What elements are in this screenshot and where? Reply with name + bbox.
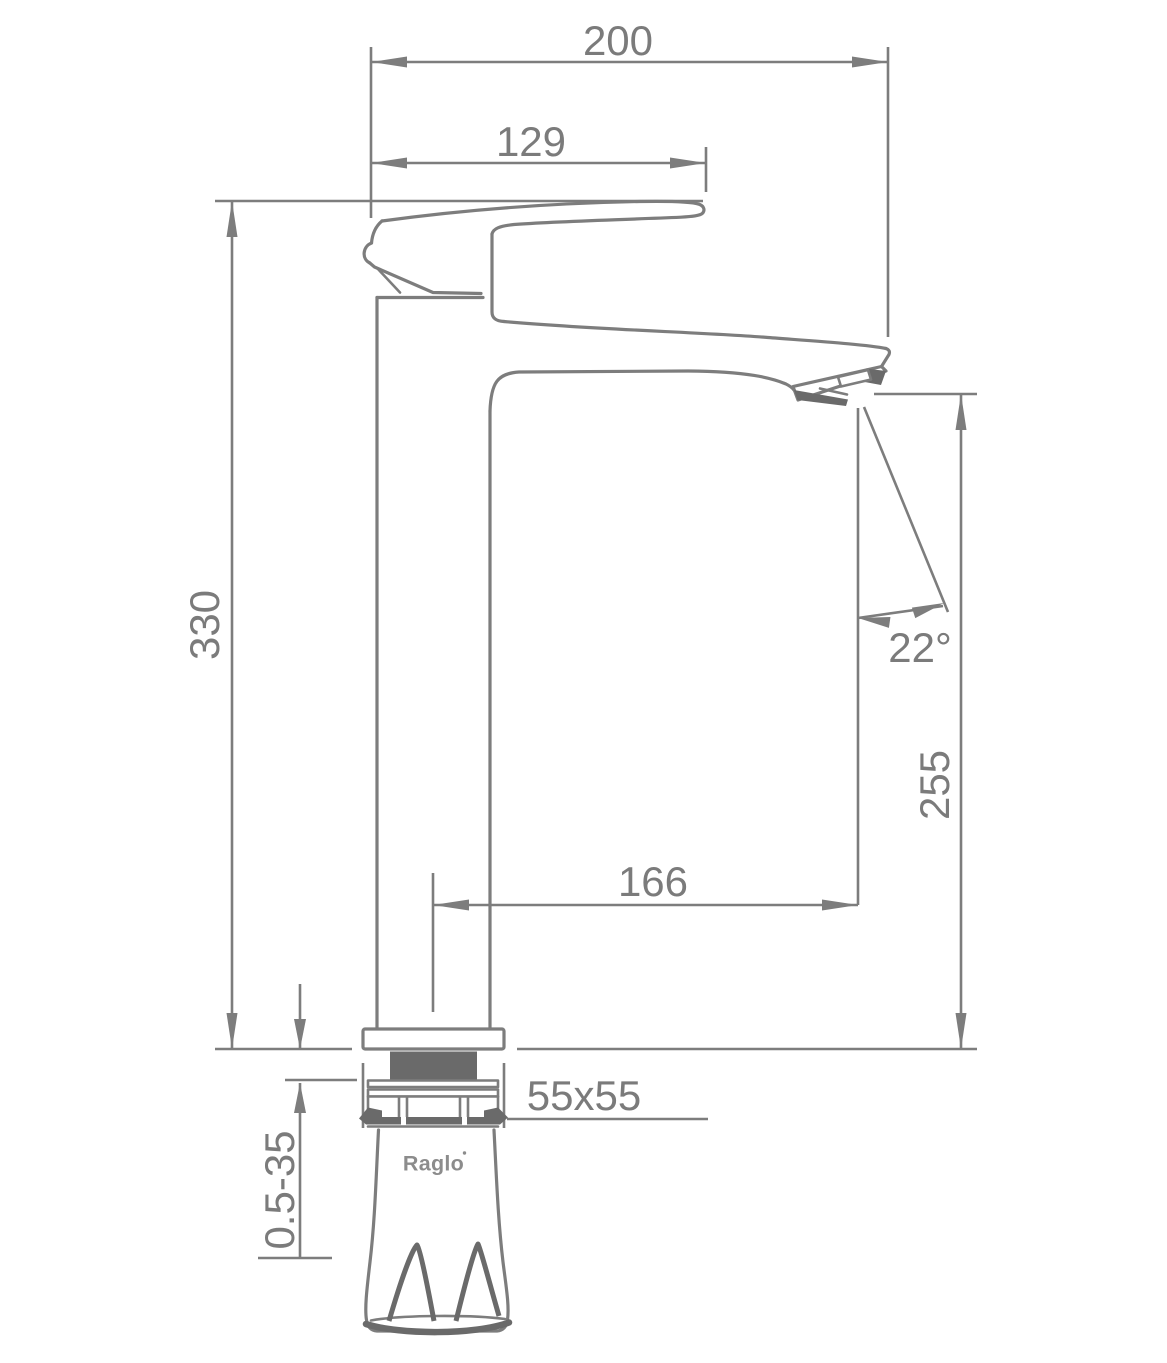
dimension-deck-thickness: 0.5-35 <box>256 984 357 1258</box>
arrowhead <box>294 1019 306 1049</box>
arrowhead <box>227 1013 238 1049</box>
total-height-label: 330 <box>181 590 228 660</box>
arrowhead <box>371 158 407 169</box>
spout-top-edge <box>504 322 886 349</box>
deck-thickness-label: 0.5-35 <box>256 1130 303 1249</box>
dimension-spout-angle: 22° <box>857 407 952 905</box>
nut-dark-band <box>380 1117 486 1125</box>
stream-angled-line <box>864 407 948 612</box>
faucet-spout <box>490 322 889 412</box>
threaded-shank <box>390 1052 477 1081</box>
mounting-hardware <box>359 1052 508 1127</box>
arrowhead <box>227 201 238 237</box>
bell-dark-bottom <box>366 1323 509 1333</box>
spout-underside <box>490 371 794 411</box>
handle-lever-outline <box>382 201 704 234</box>
arrowhead <box>822 900 858 911</box>
spout-reach-label: 166 <box>618 858 688 905</box>
faucet-handle <box>364 201 704 321</box>
dimension-spout-reach: 166 <box>433 858 858 1012</box>
dimension-spout-outlet-height: 255 <box>874 394 977 1049</box>
handle-front-face <box>372 221 383 243</box>
spout-end-face <box>882 349 890 367</box>
arrowhead <box>956 394 967 430</box>
faucet-outline: Raglo <box>359 201 889 1332</box>
washer-1 <box>368 1081 498 1088</box>
technical-drawing-svg: 200 129 330 255 22° <box>0 0 1167 1363</box>
faucet-base-plate <box>363 1029 504 1049</box>
arrowhead <box>956 1013 967 1049</box>
bell-arch-left <box>389 1245 434 1321</box>
arrowhead <box>670 158 706 169</box>
faucet-aerator <box>793 367 886 407</box>
trademark-dot <box>463 1151 466 1154</box>
nut-band-gap <box>462 1117 467 1125</box>
arrowhead <box>852 57 888 68</box>
nut-band-gap <box>401 1117 406 1125</box>
arrowhead <box>433 900 469 911</box>
drawing-canvas: 200 129 330 255 22° <box>0 0 1167 1363</box>
spout-angle-label: 22° <box>888 624 952 671</box>
base-plate-label: 55x55 <box>527 1072 641 1119</box>
handle-front-cap <box>364 243 371 263</box>
arrowhead <box>294 1083 306 1113</box>
brand-logo: Raglo <box>403 1151 466 1175</box>
overall-width-label: 200 <box>583 17 653 64</box>
arrowhead <box>371 57 407 68</box>
dimension-overall-width: 200 <box>371 17 888 337</box>
base-plate-rect <box>363 1029 504 1049</box>
bell-arch-right <box>456 1244 499 1321</box>
handle-length-label: 129 <box>496 118 566 165</box>
arrowhead <box>912 598 946 618</box>
dimension-handle-length: 129 <box>371 118 706 192</box>
handle-rear-boss <box>492 234 504 322</box>
brand-name: Raglo <box>403 1152 464 1176</box>
spout-outlet-height-label: 255 <box>911 750 958 820</box>
aerator-window <box>838 370 871 387</box>
